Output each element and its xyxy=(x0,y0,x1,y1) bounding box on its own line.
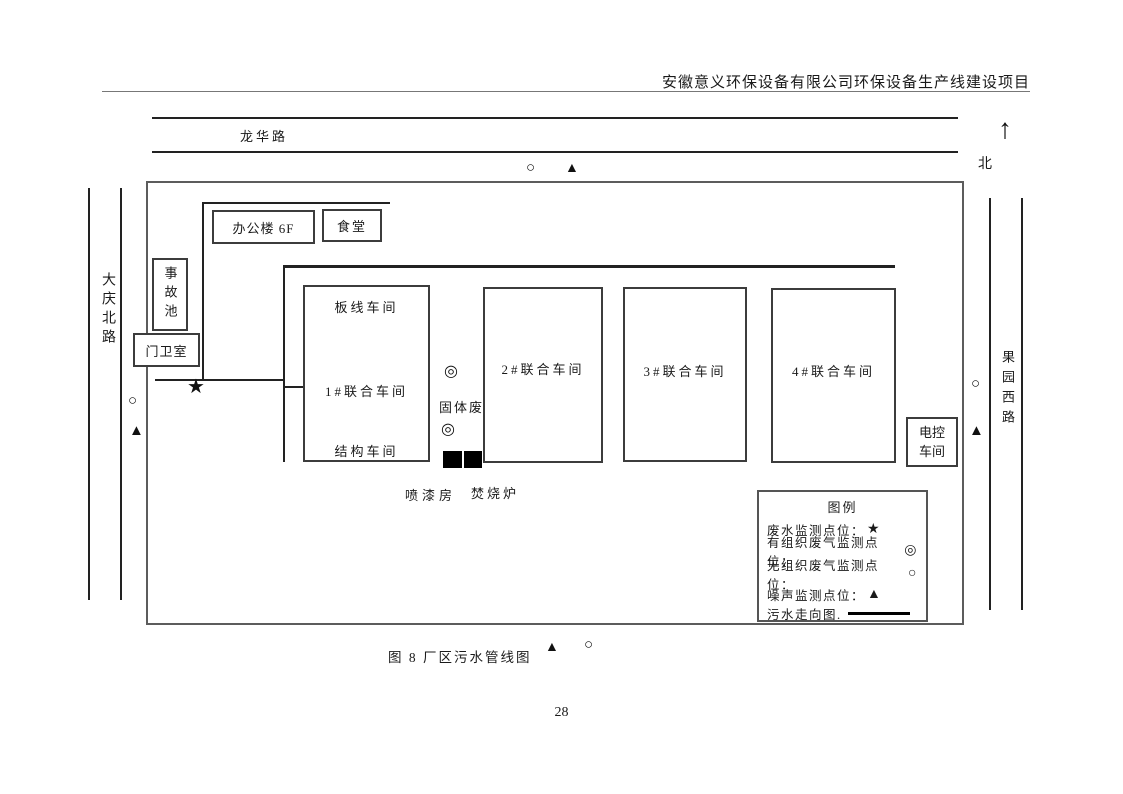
daqing-north-road-inner-line xyxy=(120,188,122,600)
board-line-workshop-label: 板线车间 xyxy=(305,297,428,316)
page-number: 28 xyxy=(0,705,1123,721)
workshop2-label: 2#联合车间 xyxy=(485,359,601,378)
organized-gas-monitor-point-1: ◎ xyxy=(444,364,458,380)
workshop1-label: 1#联合车间 xyxy=(305,381,428,400)
workshop2-building: 2#联合车间 xyxy=(483,287,603,463)
legend-item-sewage-flow: 污水走向图. xyxy=(767,604,918,623)
page-header-title: 安徽意义环保设备有限公司环保设备生产线建设项目 xyxy=(662,71,1030,92)
office-building-label: 办公楼 6F xyxy=(233,218,295,237)
legend-item-sewage-flow-label: 污水走向图. xyxy=(767,604,842,623)
header-rule xyxy=(102,91,1030,92)
daqing-north-road-outer-line xyxy=(88,188,90,600)
accident-pool: 事故池 xyxy=(152,258,188,331)
sewage-flow-line-icon xyxy=(848,612,910,615)
organized-gas-monitor-point-2: ◎ xyxy=(441,422,455,438)
legend-item-noise-label: 噪声监测点位： xyxy=(767,585,865,604)
longhua-road-lower-line xyxy=(152,151,958,153)
north-label: 北 xyxy=(978,153,992,173)
incinerator-label: 焚烧炉 xyxy=(471,483,519,502)
incinerator-block xyxy=(464,451,482,468)
legend-box: 图例 废水监测点位： ★ 有组织废气监测点位： ◎ 无组织废气监测点位： ○ 噪… xyxy=(757,490,928,622)
noise-monitor-point-top: ▲ xyxy=(565,162,579,176)
workshop3-label: 3#联合车间 xyxy=(625,361,745,380)
paint-room-block xyxy=(443,451,462,468)
noise-monitor-point-bottom: ▲ xyxy=(545,641,559,655)
longhua-road-upper-line xyxy=(152,117,958,119)
structure-workshop-label: 结构车间 xyxy=(305,441,428,460)
figure-caption: 图 8 厂区污水管线图 xyxy=(388,646,532,666)
longhua-road-label: 龙华路 xyxy=(240,126,288,145)
sewage-line-bottom xyxy=(155,379,285,381)
fugitive-gas-monitor-point-right: ○ xyxy=(971,377,980,392)
electric-control-label-line1: 电控 xyxy=(919,423,945,443)
document-page: 安徽意义环保设备有限公司环保设备生产线建设项目 龙华路 ↑ 北 ○ ▲ 大庆北路… xyxy=(0,0,1123,794)
guoyuan-west-road-outer-line xyxy=(1021,198,1023,610)
guard-room-label: 门卫室 xyxy=(145,341,187,360)
legend-title: 图例 xyxy=(767,497,918,516)
circle-icon: ○ xyxy=(908,566,918,582)
workshop1-building: 板线车间 1#联合车间 结构车间 xyxy=(303,285,430,462)
canteen-building: 食堂 xyxy=(322,209,382,242)
canteen-label: 食堂 xyxy=(337,216,367,235)
guard-room: 门卫室 xyxy=(133,333,200,367)
north-arrow-icon: ↑ xyxy=(998,116,1012,144)
paint-room-label: 喷漆房 xyxy=(405,485,456,504)
electric-control-room: 电控 车间 xyxy=(906,417,958,467)
fugitive-gas-monitor-point-bottom: ○ xyxy=(584,638,593,653)
triangle-icon: ▲ xyxy=(867,587,882,603)
fugitive-gas-monitor-point-left: ○ xyxy=(128,394,137,409)
workshop3-building: 3#联合车间 xyxy=(623,287,747,462)
fugitive-gas-monitor-point-top: ○ xyxy=(526,161,535,176)
legend-item-fugitive-gas: 无组织废气监测点位： ○ xyxy=(767,562,918,585)
noise-monitor-point-left: ▲ xyxy=(129,424,144,439)
noise-monitor-point-right: ▲ xyxy=(969,424,984,439)
double-circle-icon: ◎ xyxy=(904,542,918,559)
workshop4-building: 4#联合车间 xyxy=(771,288,896,463)
workshop-area-left-line xyxy=(283,265,285,462)
legend-item-noise: 噪声监测点位： ▲ xyxy=(767,585,918,604)
workshop-area-top-line xyxy=(283,265,895,268)
sewage-line-top xyxy=(202,202,390,204)
electric-control-label-line2: 车间 xyxy=(919,442,945,462)
daqing-north-road-label: 大庆北路 xyxy=(97,272,117,348)
guoyuan-west-road-inner-line xyxy=(989,198,991,610)
sewage-line-connector xyxy=(283,386,304,388)
sewage-line-vertical xyxy=(202,202,204,381)
accident-pool-label: 事故池 xyxy=(161,266,180,323)
solid-waste-label: 固体废 xyxy=(439,397,484,416)
workshop4-label: 4#联合车间 xyxy=(773,361,894,380)
guoyuan-west-road-label: 果园西路 xyxy=(998,350,1017,430)
office-building: 办公楼 6F xyxy=(212,210,315,244)
wastewater-monitor-point: ★ xyxy=(187,377,205,397)
